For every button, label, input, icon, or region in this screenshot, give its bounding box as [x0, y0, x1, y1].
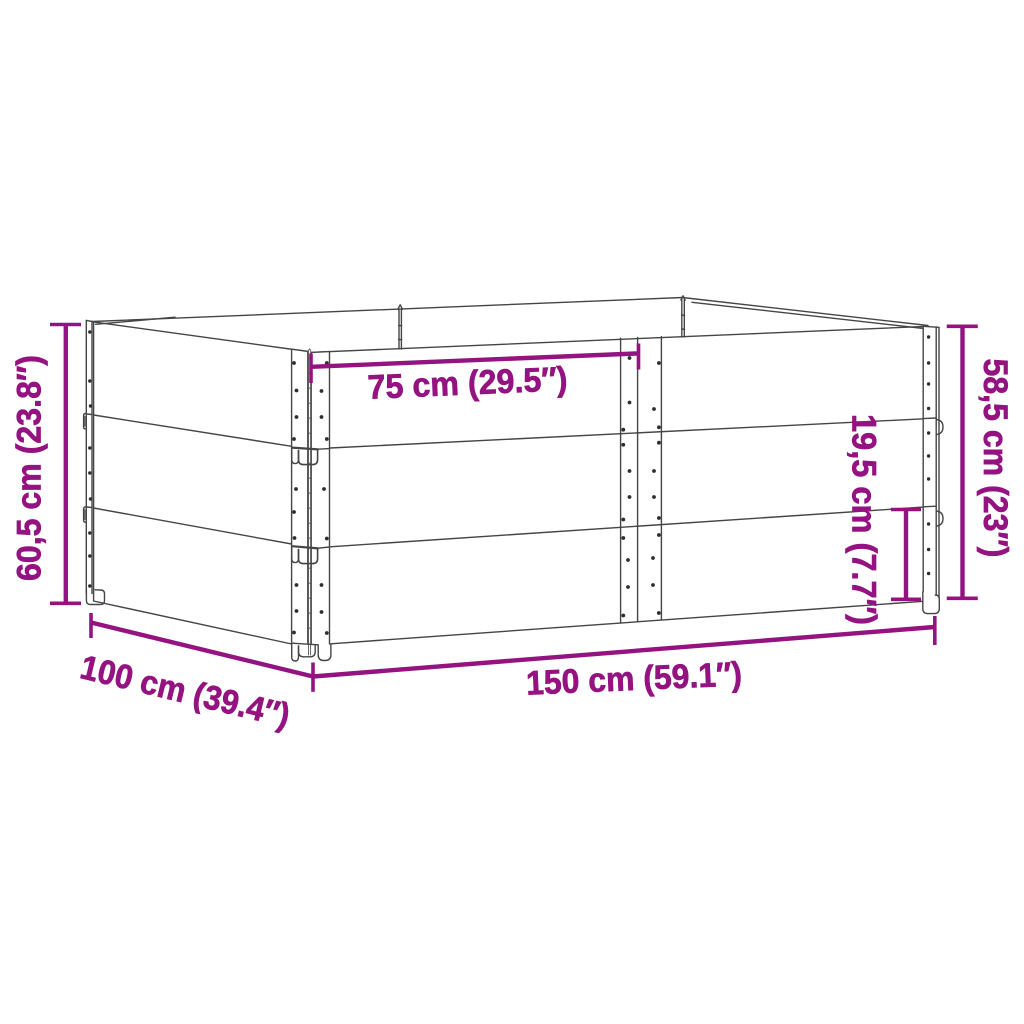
- svg-text:60,5 cm (23.8″): 60,5 cm (23.8″): [11, 355, 49, 581]
- svg-text:58,5 cm (23″): 58,5 cm (23″): [976, 359, 1014, 558]
- svg-text:19,5 cm (7.7″): 19,5 cm (7.7″): [845, 414, 883, 625]
